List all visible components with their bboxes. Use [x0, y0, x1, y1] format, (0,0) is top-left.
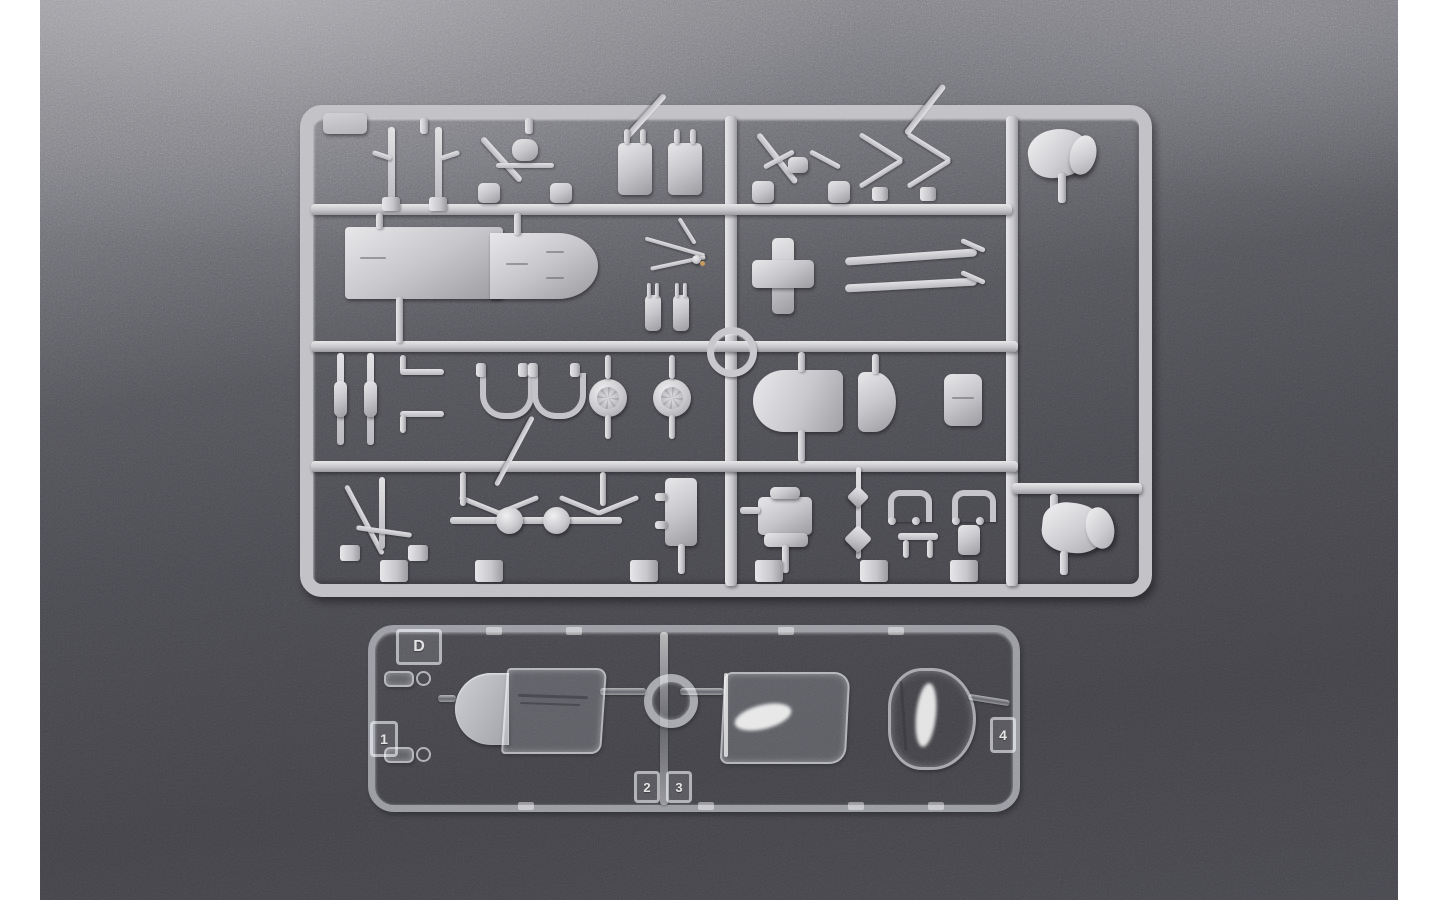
part-number: 3 — [675, 780, 682, 795]
part-number-tab: 4 — [990, 717, 1016, 753]
part-oleo-sleeve — [364, 381, 377, 417]
part-canopy-frame-crossbar — [496, 163, 554, 168]
part-arch-foot — [828, 181, 850, 203]
part-block-tab — [655, 521, 667, 529]
part-gear-yoke — [532, 373, 586, 419]
part-linkage-disc — [496, 507, 523, 534]
molding-foot — [755, 560, 783, 582]
part-l-fitting — [400, 369, 444, 375]
part-arch-foot — [752, 181, 774, 203]
clear-sprue-stub — [438, 695, 456, 702]
sprue-stub — [669, 415, 675, 439]
part-yoke-ear — [570, 363, 580, 377]
part-fitting-prong — [647, 283, 651, 297]
sprue-stub — [605, 355, 611, 379]
part-l-fitting — [400, 415, 406, 433]
sprue-stub — [798, 352, 805, 372]
gray-sprue — [300, 105, 1152, 597]
molding-foot — [630, 560, 658, 582]
sprue-stub — [600, 472, 606, 506]
sprue-letter-tab: D — [396, 629, 442, 665]
part-block-prong — [624, 129, 630, 144]
part-intake-fairing — [944, 374, 982, 426]
clear-sprue-boss — [644, 674, 698, 728]
sprue-letter: D — [413, 638, 425, 656]
part-canopy-frame-base — [478, 183, 500, 203]
molding-foot — [475, 560, 503, 582]
part-fitting-prong — [655, 283, 659, 297]
sprue-rail — [1012, 483, 1142, 494]
part-small-block — [958, 525, 980, 555]
panel-line — [546, 277, 564, 279]
molding-foot — [872, 187, 888, 201]
part-windscreen-glass — [501, 668, 607, 754]
part-connector-block — [668, 143, 702, 195]
molding-foot — [420, 118, 428, 134]
sprue-label-plate — [323, 113, 367, 134]
part-wheel-hub — [597, 387, 619, 409]
rail-notch — [848, 802, 864, 810]
molding-foot — [429, 197, 447, 211]
sprue-stub — [396, 297, 403, 343]
sprue-stub — [669, 355, 675, 379]
part-lens-ring — [416, 747, 431, 762]
sprue-stub — [1058, 173, 1066, 203]
rail-notch — [778, 627, 794, 635]
sprue-stub — [678, 544, 685, 574]
part-gun-breech-step — [770, 487, 800, 499]
sprue-stub — [605, 415, 611, 439]
clear-sprue-rail — [600, 688, 646, 695]
part-block-tab — [655, 493, 667, 501]
sprue-stub — [514, 213, 521, 235]
sprue-stub — [460, 472, 466, 506]
part-gear-yoke — [480, 373, 534, 419]
rail-notch — [518, 802, 534, 810]
panel-line — [360, 257, 386, 259]
part-lens-ring — [416, 671, 431, 686]
part-oleo-sleeve — [334, 381, 347, 417]
part-small-lens — [384, 671, 414, 687]
part-block-prong — [674, 129, 680, 144]
molding-foot — [920, 187, 936, 201]
part-canopy-frame-center — [512, 139, 538, 161]
part-fuselage-deck — [345, 227, 503, 299]
part-bench-fitting — [898, 533, 938, 540]
part-linkage-bar — [450, 517, 622, 524]
molding-foot — [382, 197, 400, 211]
sprue-rail — [311, 461, 1018, 472]
part-yoke-ear — [476, 363, 486, 377]
sprue-stub — [376, 213, 383, 229]
sprue-rail — [311, 341, 1018, 352]
part-clip-foot — [912, 517, 920, 525]
panel-line — [952, 397, 974, 399]
rail-notch — [888, 627, 904, 635]
part-linkage-disc — [543, 507, 570, 534]
part-pronged-fitting — [645, 295, 661, 331]
paint-fleck — [700, 261, 705, 266]
part-pronged-fitting — [673, 295, 689, 331]
clear-sprue: D 1 2 3 4 — [368, 625, 1020, 812]
molding-foot — [380, 560, 408, 582]
canopy-edge-highlight — [724, 673, 728, 757]
part-small-lens — [384, 747, 414, 763]
rail-notch — [486, 627, 502, 635]
sprue-rail — [311, 204, 1012, 215]
part-number-tab: 3 — [666, 771, 692, 803]
part-number-tab: 2 — [634, 771, 660, 803]
molding-foot — [950, 560, 978, 582]
clear-sprue-rail — [680, 688, 724, 695]
part-block-prong — [690, 129, 696, 144]
part-junction-block — [665, 478, 697, 546]
panel-line — [506, 263, 528, 265]
part-number: 1 — [380, 731, 388, 747]
part-cross-mount — [752, 260, 814, 288]
part-number: 4 — [999, 727, 1007, 743]
part-number: 2 — [643, 780, 650, 795]
part-arch-center — [788, 157, 808, 173]
part-bench-leg — [903, 540, 909, 558]
part-block-prong — [640, 129, 646, 144]
sprue-stub — [798, 430, 805, 462]
part-fuselage-deck-aft — [490, 233, 598, 299]
part-wheel-hub — [661, 387, 683, 409]
part-hoist-ring — [707, 327, 757, 377]
part-clip-foot — [888, 517, 896, 525]
sprue-stub — [782, 545, 789, 573]
sprue-stub — [1060, 551, 1068, 575]
part-gear-tripod-leg — [379, 477, 385, 549]
part-canopy-frame-base — [550, 183, 572, 203]
part-gun-breech — [758, 497, 812, 535]
part-clip-foot — [952, 517, 960, 525]
part-fitting-prong — [675, 283, 679, 297]
part-bench-leg — [927, 540, 933, 558]
sprue-stub — [872, 354, 879, 374]
molding-foot — [525, 118, 533, 134]
rail-notch — [566, 627, 582, 635]
molding-foot — [408, 545, 428, 561]
part-connector-block — [618, 143, 652, 195]
photo-model-kit-sprues: D 1 2 3 4 — [40, 0, 1398, 900]
panel-line — [546, 251, 564, 253]
part-gun-barrel — [740, 507, 760, 514]
part-yoke-ear — [518, 363, 528, 377]
part-fitting-prong — [683, 283, 687, 297]
part-engine-cowling — [753, 370, 843, 432]
rail-notch — [928, 802, 944, 810]
molding-foot — [860, 560, 888, 582]
part-clip-foot — [976, 517, 984, 525]
rail-notch — [698, 802, 714, 810]
part-yoke-ear — [528, 363, 538, 377]
molding-foot — [340, 545, 360, 561]
part-l-fitting — [400, 411, 444, 417]
